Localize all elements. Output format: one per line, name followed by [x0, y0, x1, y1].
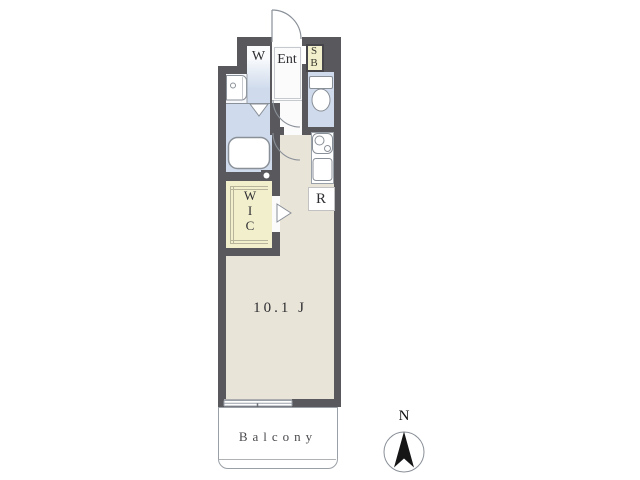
- compass-north-icon: [384, 432, 424, 473]
- label-wic-i: I: [238, 203, 262, 218]
- room-bathroom: [226, 103, 272, 172]
- wall-segment: [302, 72, 308, 127]
- label-balcony: Balcony: [219, 430, 337, 443]
- wall-segment: [218, 399, 341, 407]
- label-shoe-box-bottom: B: [306, 58, 322, 69]
- wall-segment: [322, 37, 341, 72]
- room-main: [226, 256, 280, 399]
- wall-segment: [272, 103, 280, 172]
- label-refrigerator: R: [308, 192, 334, 207]
- wall-segment: [270, 127, 284, 135]
- wall-segment: [302, 127, 334, 135]
- wall-segment: [226, 172, 280, 181]
- room-kitchen-strip: [280, 135, 334, 399]
- label-wic-c: C: [238, 218, 262, 233]
- label-compass-north: N: [384, 409, 424, 424]
- wall-segment: [272, 181, 280, 196]
- label-wic-w: W: [238, 188, 262, 203]
- entrance-hall-opening: [284, 127, 302, 135]
- wic-door-gap: [272, 196, 280, 232]
- entrance-threshold: [272, 37, 302, 46]
- label-wic: W I C: [238, 188, 262, 233]
- label-main-room-size: 10.1 J: [226, 301, 334, 316]
- wall-segment: [218, 248, 280, 256]
- label-washing-machine: W: [247, 50, 270, 64]
- label-shoe-box-top: S: [306, 46, 322, 57]
- wall-segment: [334, 37, 341, 407]
- room-toilet: [308, 72, 334, 127]
- floor-plan: W Ent S B W I C R 10.1 J Balcony N: [0, 0, 640, 480]
- wall-segment: [218, 66, 247, 74]
- wall-segment: [218, 66, 226, 407]
- label-entrance: Ent: [269, 53, 305, 67]
